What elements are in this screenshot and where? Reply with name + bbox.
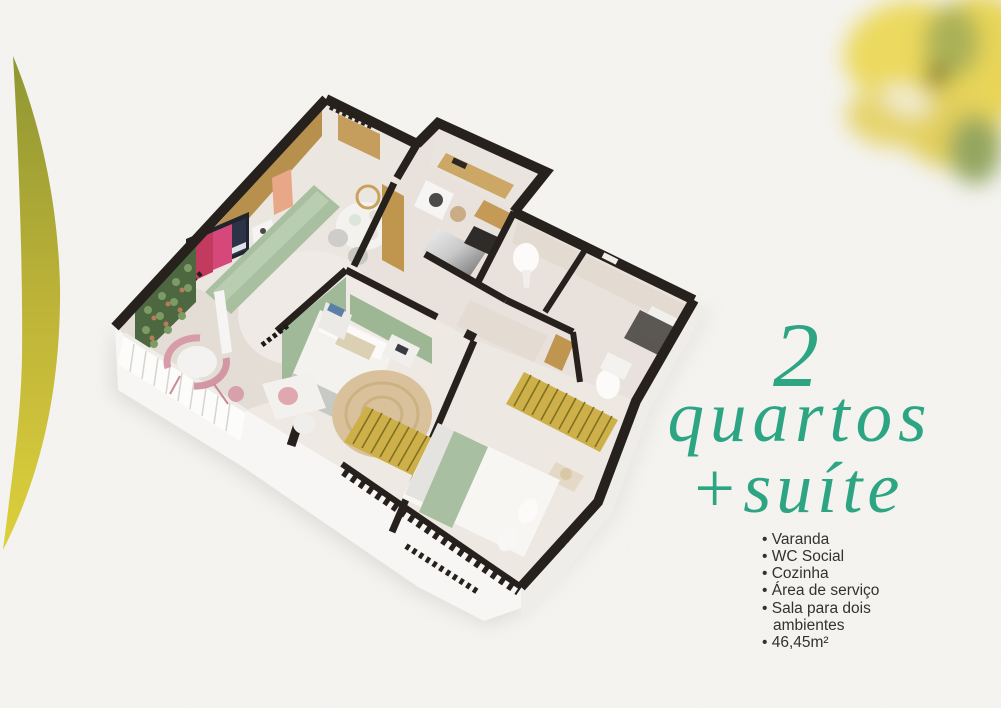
svg-text:quartos: quartos bbox=[667, 376, 932, 457]
svg-text:• Sala para dois: • Sala para dois bbox=[762, 600, 871, 617]
svg-text:• Cozinha: • Cozinha bbox=[762, 565, 829, 582]
svg-text:• Varanda: • Varanda bbox=[762, 531, 830, 548]
svg-text:+suíte: +suíte bbox=[690, 448, 905, 528]
svg-text:• WC Social: • WC Social bbox=[762, 548, 844, 565]
svg-text:• 46,45m²: • 46,45m² bbox=[762, 634, 829, 651]
svg-text:ambientes: ambientes bbox=[773, 617, 845, 634]
svg-text:• Área de serviço: • Área de serviço bbox=[762, 582, 879, 599]
